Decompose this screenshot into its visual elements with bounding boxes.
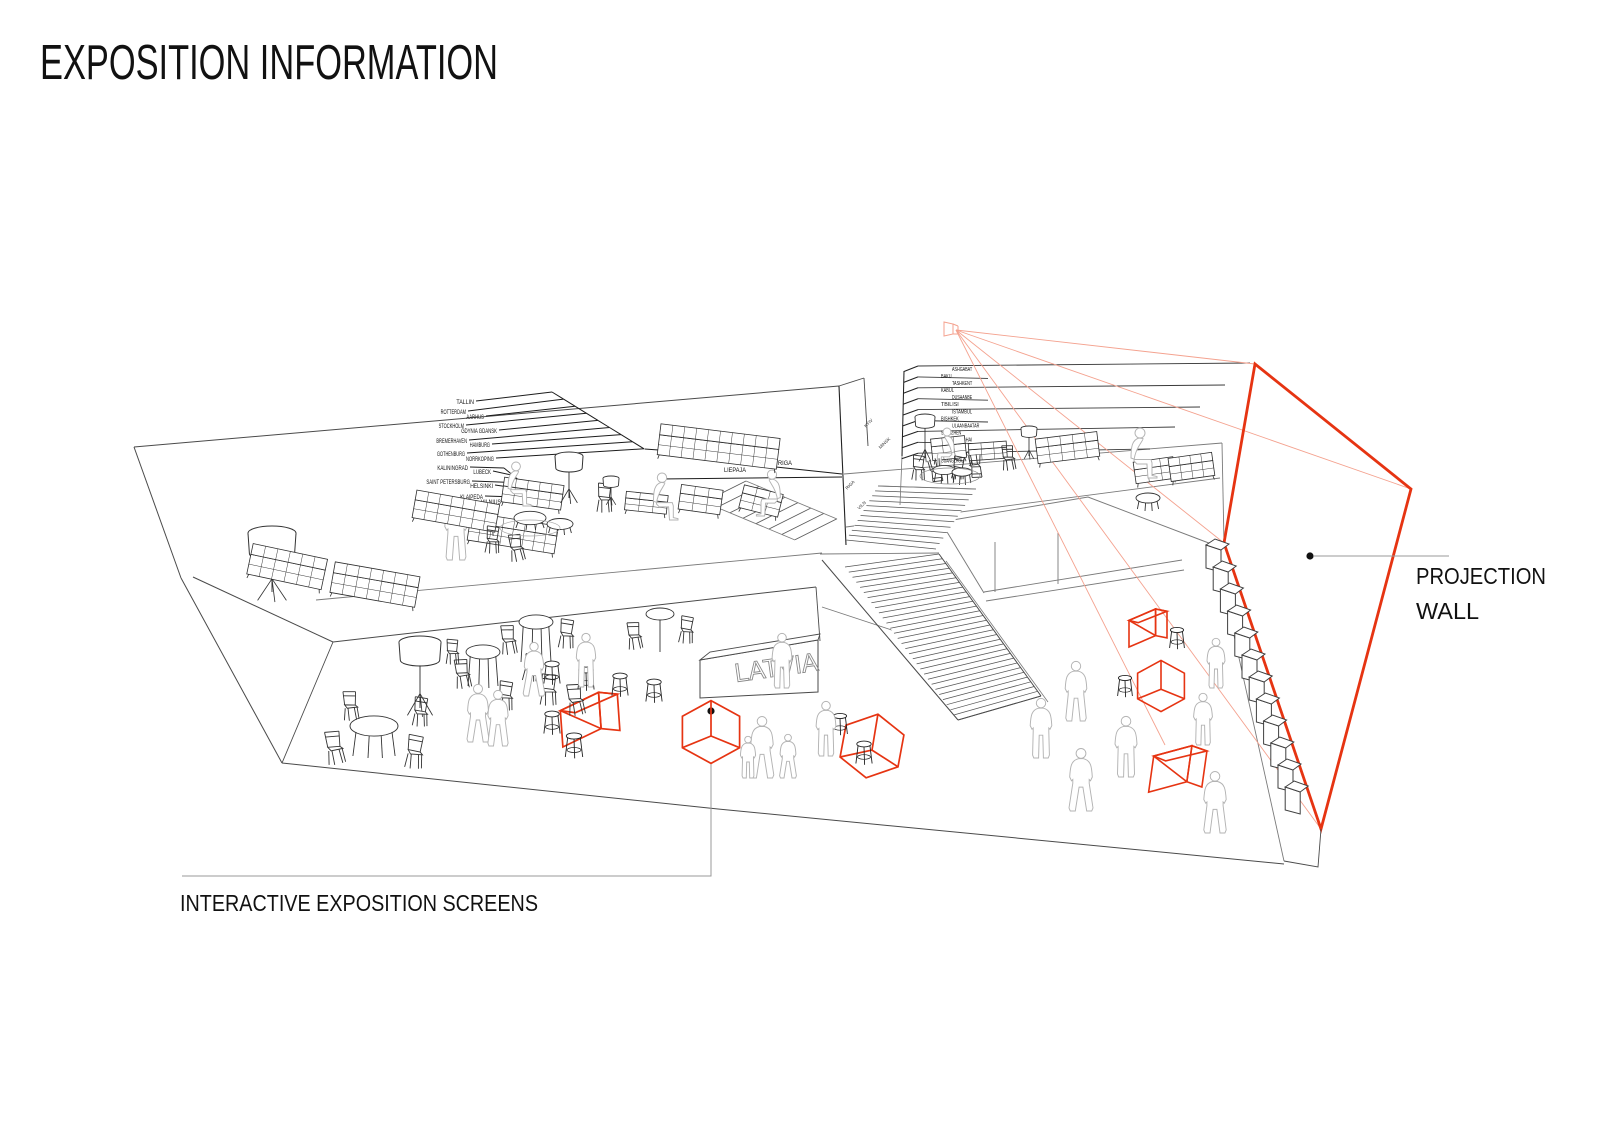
svg-text:GDYNIA GDANSK: GDYNIA GDANSK xyxy=(461,429,497,435)
svg-text:NORRKOPING: NORRKOPING xyxy=(466,457,494,463)
svg-text:HELSINKI: HELSINKI xyxy=(470,484,493,490)
svg-text:ROTTERDAM: ROTTERDAM xyxy=(441,410,466,416)
svg-text:TASHKENT: TASHKENT xyxy=(952,381,973,387)
svg-text:LIEPAJA: LIEPAJA xyxy=(724,468,746,474)
svg-text:TBILISI: TBILISI xyxy=(941,402,959,408)
svg-text:STOCKHOLM: STOCKHOLM xyxy=(439,424,464,430)
svg-text:ASHGABAT: ASHGABAT xyxy=(952,367,973,373)
svg-text:BISHKEK: BISHKEK xyxy=(941,416,959,422)
svg-text:SAINT PETERSBURG: SAINT PETERSBURG xyxy=(426,480,470,486)
svg-text:BAKU: BAKU xyxy=(941,374,952,380)
svg-text:PROJECTION: PROJECTION xyxy=(1416,563,1546,589)
svg-text:HAMBURG: HAMBURG xyxy=(470,443,490,449)
svg-text:EXPOSITION INFORMATION: EXPOSITION INFORMATION xyxy=(40,36,498,90)
svg-text:KALININGRAD: KALININGRAD xyxy=(437,466,468,472)
svg-text:LUBECK: LUBECK xyxy=(473,470,491,476)
svg-text:AARHUS: AARHUS xyxy=(466,415,484,421)
svg-text:INTERACTIVE EXPOSITION SCREENS: INTERACTIVE EXPOSITION SCREENS xyxy=(180,890,538,916)
svg-text:TALLIN: TALLIN xyxy=(456,400,474,406)
svg-text:DUSHANBE: DUSHANBE xyxy=(952,395,973,401)
svg-text:BREMERHAVEN: BREMERHAVEN xyxy=(436,439,467,445)
svg-text:ISTAMBUL: ISTAMBUL xyxy=(952,409,972,415)
svg-text:ULAANBAATAR: ULAANBAATAR xyxy=(952,423,980,429)
svg-text:KABUL: KABUL xyxy=(941,388,954,394)
svg-text:GOTHENBURG: GOTHENBURG xyxy=(437,452,465,458)
svg-text:RIGA: RIGA xyxy=(778,461,792,467)
svg-text:WALL: WALL xyxy=(1416,598,1479,624)
